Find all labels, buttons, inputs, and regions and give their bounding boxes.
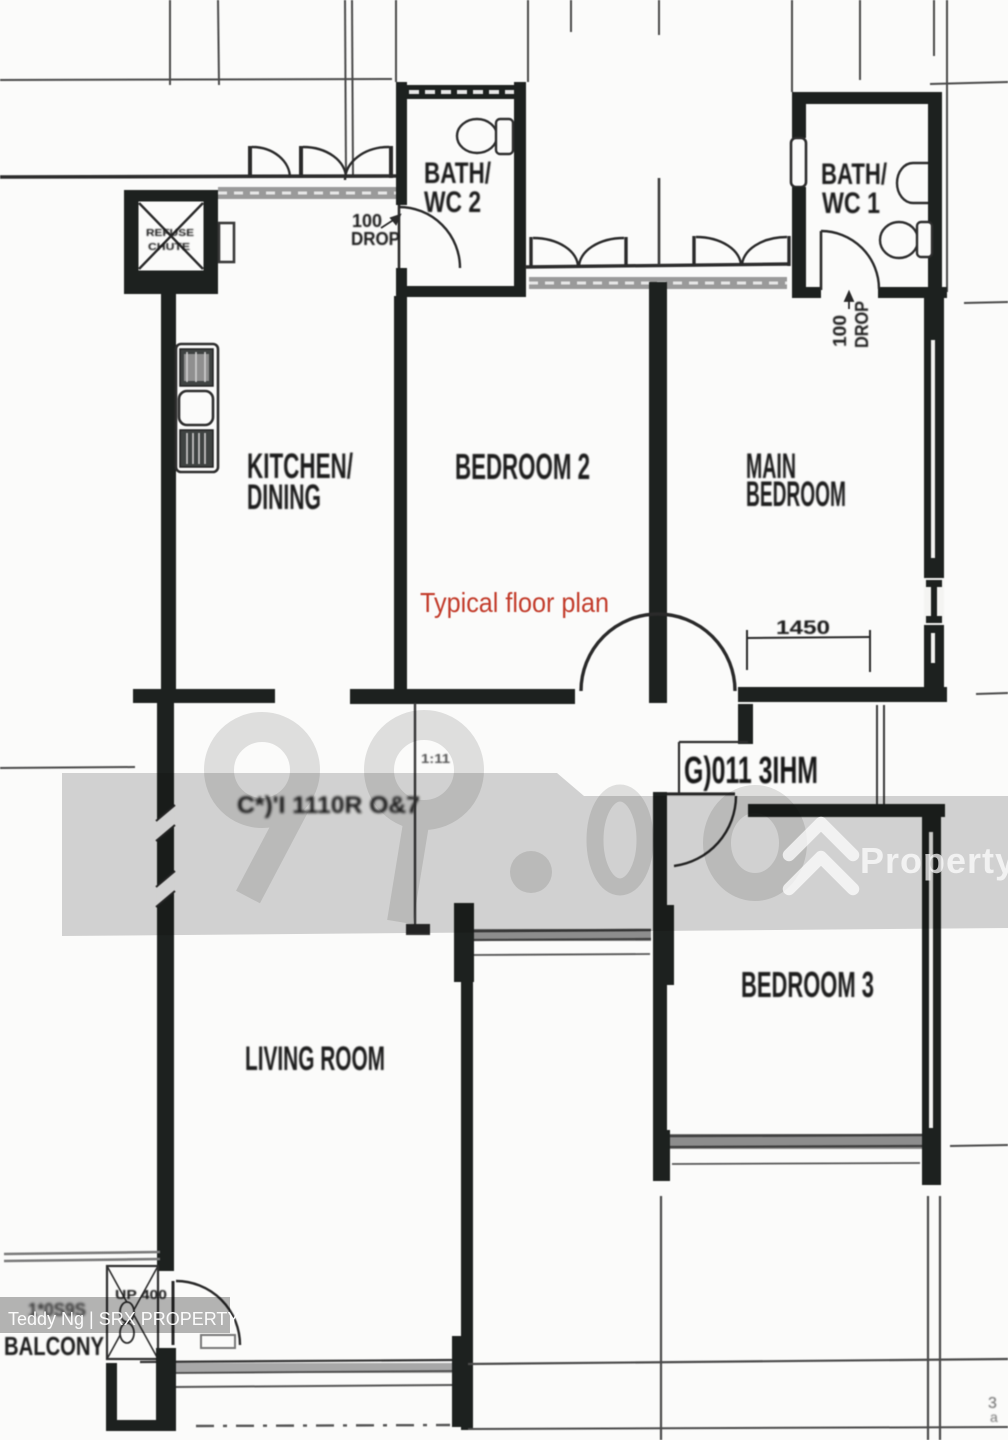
svg-text:PropertyGuru: PropertyGuru bbox=[860, 840, 1008, 881]
svg-text:Teddy Ng | SRX PROPERTY: Teddy Ng | SRX PROPERTY bbox=[8, 1309, 239, 1329]
